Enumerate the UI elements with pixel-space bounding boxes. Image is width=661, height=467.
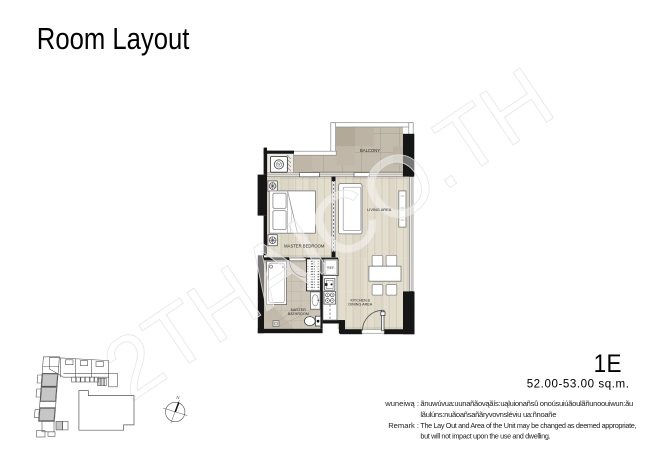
- svg-text:KITCHEN &: KITCHEN &: [350, 298, 370, 302]
- svg-text:DINING AREA: DINING AREA: [348, 303, 372, 307]
- svg-text:LIVING AREA: LIVING AREA: [367, 207, 392, 212]
- svg-text:52.00-53.00 sq.m.: 52.00-53.00 sq.m.: [527, 378, 630, 391]
- svg-text:ãnuwúvua:uunañãovąãís:uąluiona: ãnuwúvua:uunañãovąãís:uąluionañsû onoúsu…: [420, 399, 633, 408]
- svg-text:MASTER BEDROOM: MASTER BEDROOM: [284, 243, 325, 248]
- svg-text:BALCONY: BALCONY: [360, 148, 380, 153]
- svg-text:Remark :: Remark :: [388, 421, 419, 430]
- svg-text:1E: 1E: [594, 350, 622, 378]
- svg-text:The Lay Out and Area of the Un: The Lay Out and Area of the Unit may be …: [420, 421, 636, 430]
- svg-text:Room Layout: Room Layout: [37, 22, 190, 57]
- svg-text:but will not impact upon the u: but will not impact upon the use and dwe…: [420, 432, 550, 441]
- svg-text:wuneiwą :: wuneiwą :: [384, 399, 419, 408]
- svg-text:lãulúns:nuãoañsañãryvovnsléviu: lãulúns:nuãoañsañãryvovnsléviu ua:ñnoañe: [420, 410, 556, 419]
- svg-text:BATHROOM: BATHROOM: [288, 312, 309, 316]
